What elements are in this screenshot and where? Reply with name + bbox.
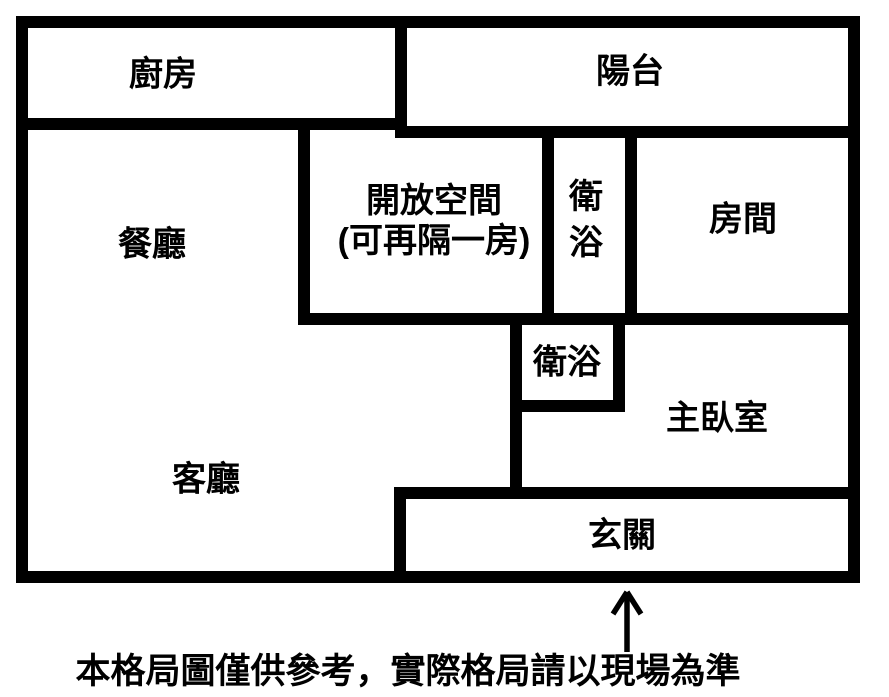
wall-outer-bottom [16, 571, 860, 583]
living-room-label: 客廳 [172, 461, 240, 498]
entrance-label: 玄關 [588, 517, 656, 554]
open-space-label-line1: 開放空間 [338, 181, 531, 221]
master-bedroom-label: 主臥室 [666, 400, 768, 437]
dining-label: 餐廳 [118, 226, 186, 263]
up-arrow-icon [605, 586, 649, 656]
open-space-label: 開放空間 (可再隔一房) [338, 181, 531, 261]
wall-bath-upper-right [625, 126, 637, 325]
wall-dining-openspace-divider [298, 118, 310, 325]
wall-middle-horizontal [298, 313, 860, 325]
wall-outer-top [16, 16, 860, 28]
wall-bath-upper-left [542, 126, 554, 325]
kitchen-label: 廚房 [129, 56, 197, 93]
bath-upper-label: 衛浴 [565, 174, 607, 266]
wall-bath-lower-bottom [510, 400, 625, 412]
balcony-label: 陽台 [596, 53, 664, 90]
disclaimer-text: 本格局圖僅供參考，實際格局請以現場為準 [75, 653, 740, 692]
open-space-label-line2: (可再隔一房) [338, 221, 531, 261]
floor-plan: 廚房 陽台 餐廳 開放空間 (可再隔一房) 衛浴 房間 衛浴 主臥室 客廳 玄關… [0, 0, 889, 697]
wall-entrance-top [394, 487, 860, 499]
room-label: 房間 [709, 201, 777, 238]
wall-entrance-left [394, 487, 406, 583]
wall-outer-left [16, 16, 28, 583]
wall-kitchen-bottom [16, 118, 407, 130]
wall-bath-lower-right [613, 325, 625, 412]
bath-lower-label: 衛浴 [533, 344, 601, 381]
